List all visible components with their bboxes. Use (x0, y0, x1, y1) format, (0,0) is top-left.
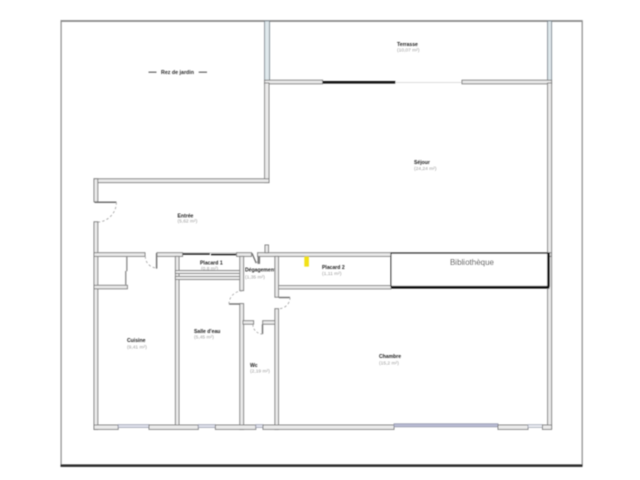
svg-text:Entrée: Entrée (178, 213, 194, 219)
svg-text:(1,11 m²): (1,11 m²) (322, 271, 342, 277)
svg-text:(2,19 m²): (2,19 m²) (250, 369, 270, 375)
svg-text:(5,45 m²): (5,45 m²) (194, 335, 214, 341)
svg-text:(10,07 m²): (10,07 m²) (397, 48, 420, 54)
svg-text:Placard 1: Placard 1 (200, 261, 223, 267)
svg-text:(15,2 m²): (15,2 m²) (379, 360, 399, 366)
svg-text:Salle d'eau: Salle d'eau (194, 329, 220, 335)
svg-text:Bibliothèque: Bibliothèque (450, 258, 495, 267)
svg-text:Cuisine: Cuisine (127, 338, 146, 344)
svg-text:Rez de jardin: Rez de jardin (161, 70, 194, 76)
svg-text:(9,41 m²): (9,41 m²) (127, 345, 147, 351)
svg-text:(1,35 m²): (1,35 m²) (245, 274, 265, 280)
svg-text:Chambre: Chambre (379, 354, 401, 360)
svg-text:(0,8 m²): (0,8 m²) (201, 266, 218, 272)
svg-text:Terrasse: Terrasse (397, 42, 418, 48)
svg-text:(24,24 m²): (24,24 m²) (414, 166, 437, 172)
svg-text:Dégagement: Dégagement (245, 267, 276, 273)
svg-text:Wc: Wc (250, 363, 258, 369)
svg-text:Placard 2: Placard 2 (322, 265, 345, 271)
svg-text:(5,62 m²): (5,62 m²) (178, 219, 198, 225)
svg-text:Séjour: Séjour (414, 160, 430, 166)
